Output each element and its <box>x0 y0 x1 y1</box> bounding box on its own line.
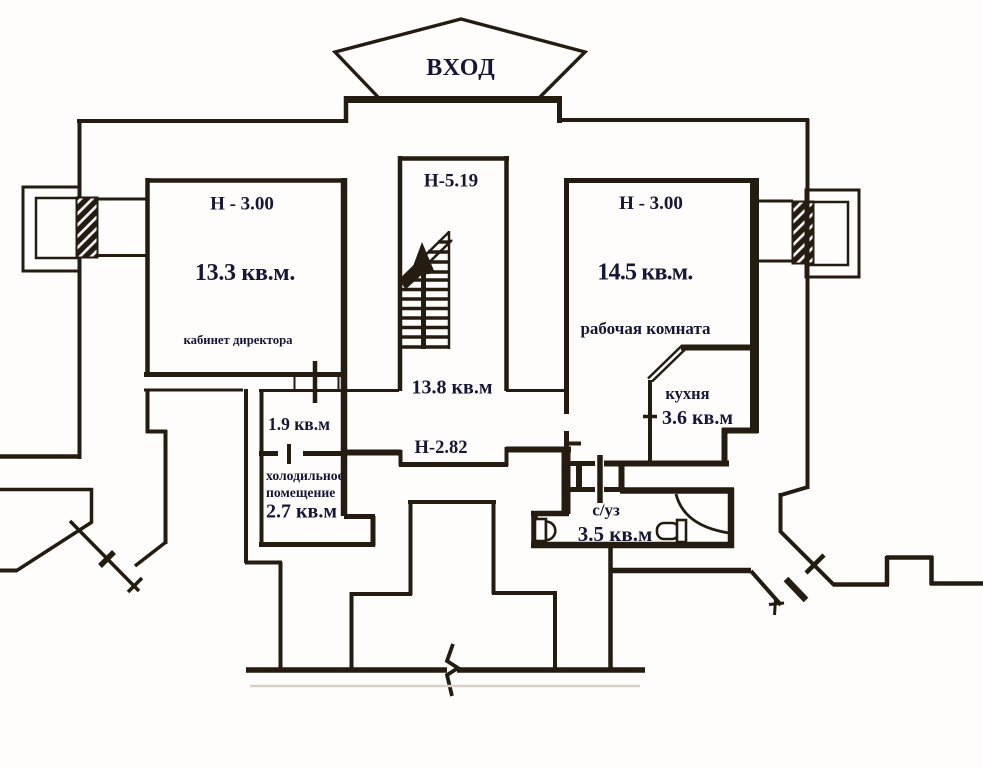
svg-text:Н - 3.00: Н - 3.00 <box>619 193 683 214</box>
svg-text:рабочая комната: рабочая комната <box>580 319 711 338</box>
svg-text:Н-5.19: Н-5.19 <box>424 171 478 192</box>
svg-text:ВХОД: ВХОД <box>426 55 496 81</box>
svg-text:холодильное: холодильное <box>266 468 344 483</box>
svg-text:кухня: кухня <box>665 384 709 403</box>
svg-text:13.3 кв.м.: 13.3 кв.м. <box>195 260 295 286</box>
svg-text:2.7 кв.м: 2.7 кв.м <box>266 501 337 523</box>
svg-text:помещение: помещение <box>266 485 335 500</box>
svg-text:3.6 кв.м: 3.6 кв.м <box>662 407 733 429</box>
svg-text:3.5 кв.м: 3.5 кв.м <box>578 522 653 546</box>
svg-text:1.9 кв.м: 1.9 кв.м <box>268 414 330 434</box>
svg-text:кабинет директора: кабинет директора <box>184 333 294 347</box>
svg-text:Н - 3.00: Н - 3.00 <box>210 194 274 215</box>
svg-text:13.8 кв.м: 13.8 кв.м <box>412 377 493 399</box>
svg-text:Н-2.82: Н-2.82 <box>415 438 468 458</box>
svg-text:с/уз: с/уз <box>592 501 620 520</box>
svg-text:14.5 кв.м.: 14.5 кв.м. <box>597 260 692 286</box>
